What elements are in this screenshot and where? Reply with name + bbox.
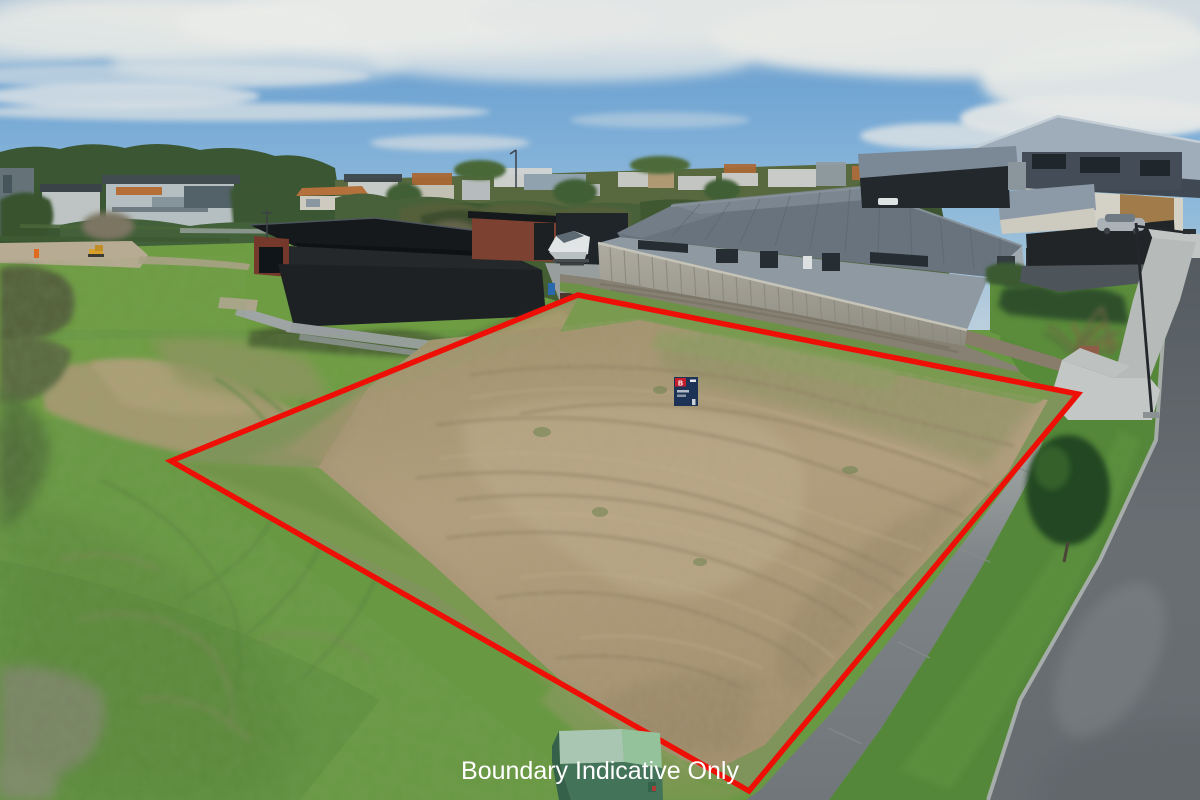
svg-text:B: B xyxy=(678,381,683,388)
svg-text:Boundary Indicative Only: Boundary Indicative Only xyxy=(461,757,739,785)
